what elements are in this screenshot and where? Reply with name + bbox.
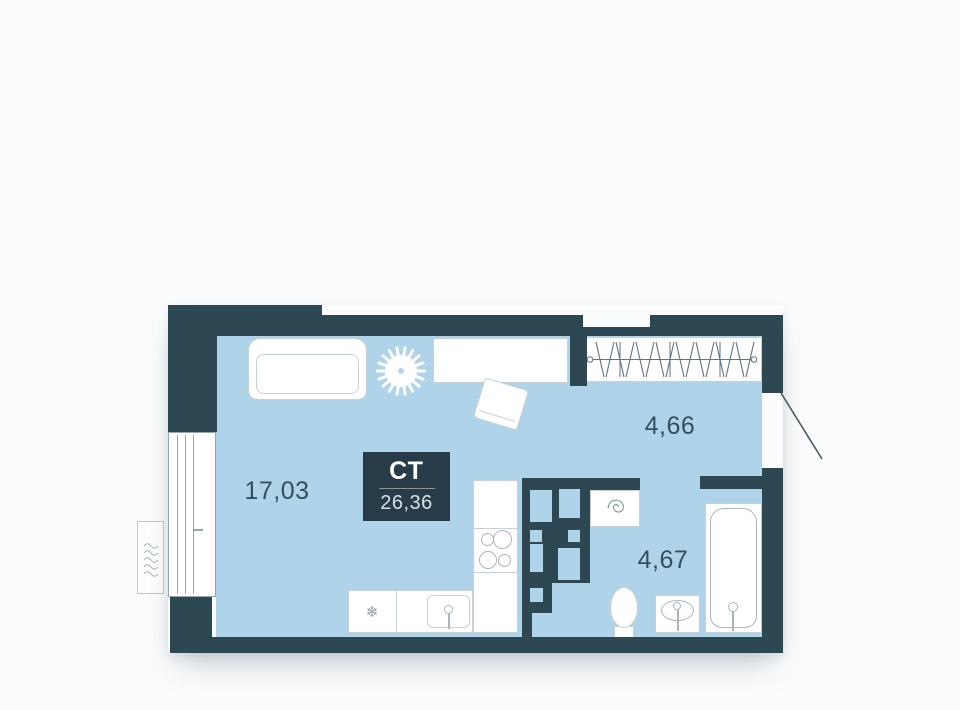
room-area-label-living: 17,03 xyxy=(217,476,337,506)
wall-top-notch xyxy=(583,315,650,327)
stove-burner-icon xyxy=(498,554,511,567)
vent-shaft-duct xyxy=(530,544,543,572)
kitchen-faucet-stem xyxy=(448,613,450,629)
wall-kitchen-bath-divider xyxy=(522,613,532,653)
wall-right-lower xyxy=(762,468,783,653)
apartment-plan: ❄ xyxy=(168,305,783,653)
badge-divider xyxy=(379,488,435,489)
wall-left-upper xyxy=(168,305,217,432)
washbasin-faucet-icon xyxy=(673,602,681,610)
wall-top-main xyxy=(322,315,783,336)
vent-shaft-duct xyxy=(559,489,580,518)
toilet-bowl xyxy=(610,587,638,628)
wall-hall-divider xyxy=(570,335,587,386)
bathtub-drain-icon xyxy=(728,602,738,612)
wall-bathroom-top-right xyxy=(700,476,762,489)
window xyxy=(168,432,216,597)
stove-burner-icon xyxy=(493,530,512,549)
wall-left-lower-pier xyxy=(170,595,212,653)
unit-type-badge: СТ 26,36 xyxy=(363,452,450,521)
desk-chair-back xyxy=(479,410,516,422)
fridge-icon: ❄ xyxy=(366,603,379,621)
vent-shaft-duct xyxy=(568,530,580,542)
unit-total-area: 26,36 xyxy=(380,492,433,515)
room-area-label-bathroom: 4,67 xyxy=(603,545,723,575)
unit-type-label: СТ xyxy=(389,458,424,484)
washbasin-faucet-stem xyxy=(677,607,679,631)
window-handle-tick xyxy=(193,529,203,531)
sofa xyxy=(248,338,367,400)
bathtub-drain-stem xyxy=(732,610,734,631)
plant-icon xyxy=(375,345,427,397)
wall-right-upper xyxy=(762,315,783,393)
floorplan-canvas: ❄ xyxy=(0,0,960,710)
wardrobe xyxy=(582,337,762,382)
fridge: ❄ xyxy=(348,590,397,633)
radiator-icon xyxy=(137,521,164,594)
wardrobe-hangers-icon xyxy=(583,338,761,381)
stove-burner-icon xyxy=(479,551,497,569)
window-frame-line xyxy=(185,435,186,594)
washing-machine xyxy=(590,490,640,527)
window-frame-line xyxy=(177,435,178,594)
washing-machine-drum-icon xyxy=(591,491,641,528)
desk xyxy=(433,338,568,383)
vent-shaft-duct xyxy=(558,548,580,580)
vent-shaft-duct xyxy=(530,490,552,522)
vent-shaft-duct xyxy=(530,530,542,542)
sofa-seat xyxy=(256,354,359,394)
radiator-waves-icon xyxy=(138,522,165,595)
wall-bottom xyxy=(212,637,783,653)
vent-shaft-duct xyxy=(530,588,543,602)
room-area-label-hallway: 4,66 xyxy=(610,411,730,441)
window-frame-line xyxy=(193,435,194,594)
